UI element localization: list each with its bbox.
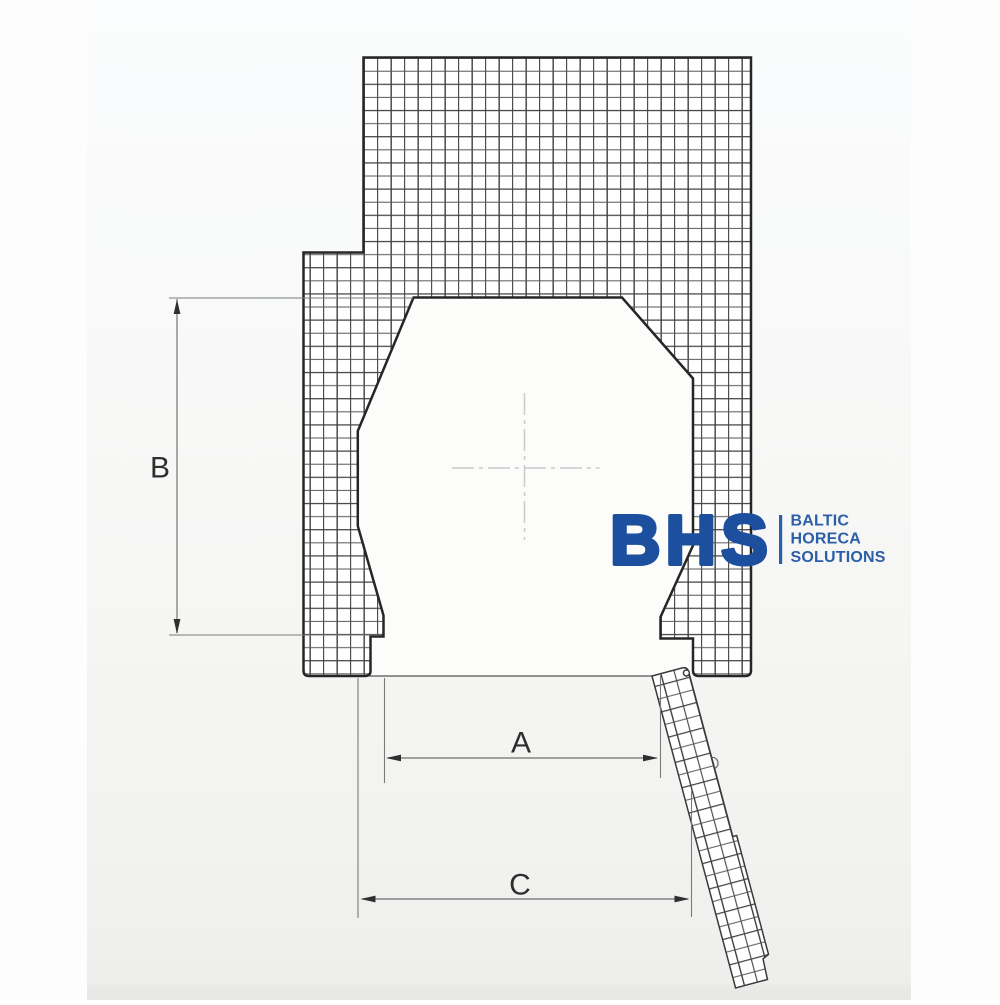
svg-text:BHS: BHS (610, 501, 773, 579)
svg-text:B: B (150, 452, 170, 485)
svg-text:A: A (511, 727, 531, 760)
svg-text:C: C (509, 869, 531, 902)
svg-text:SOLUTIONS: SOLUTIONS (791, 549, 886, 566)
svg-text:BALTIC: BALTIC (791, 513, 850, 530)
svg-text:HORECA: HORECA (791, 531, 862, 548)
